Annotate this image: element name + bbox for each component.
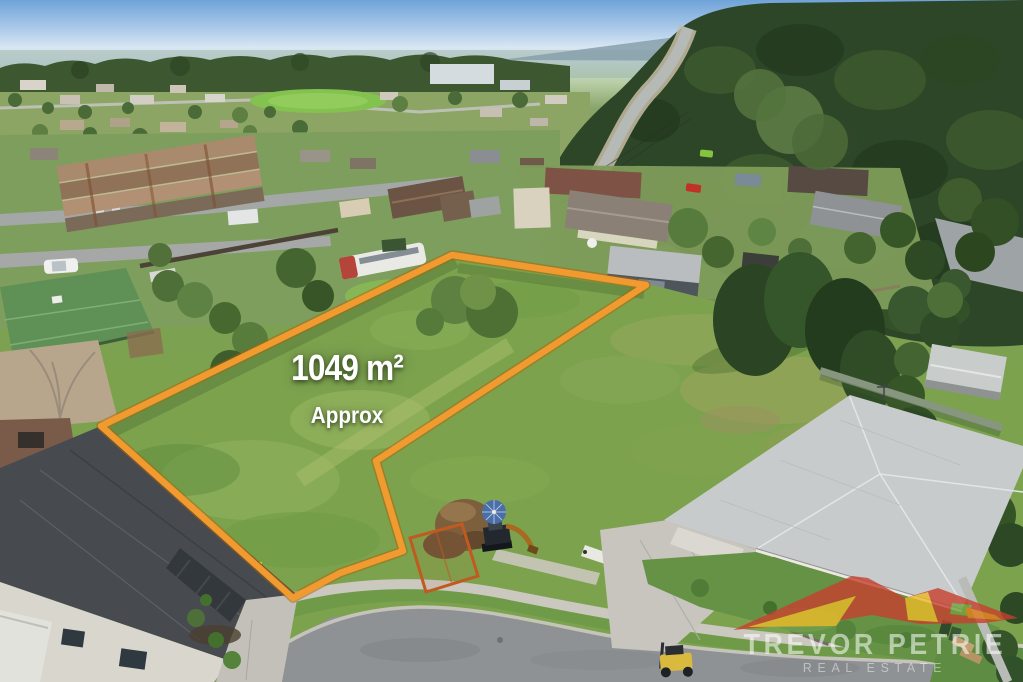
watermark-brand-name: TREVOR PETRIE bbox=[739, 631, 1011, 660]
bus-shelter bbox=[227, 209, 258, 226]
white-car bbox=[44, 258, 79, 274]
green-shed bbox=[382, 238, 407, 252]
green-car bbox=[700, 149, 714, 157]
scene bbox=[0, 0, 1023, 682]
watermark-tagline: REAL ESTATE bbox=[734, 661, 1015, 674]
umbrella bbox=[482, 500, 506, 524]
garden-shed-right bbox=[924, 344, 1006, 401]
skylight bbox=[52, 295, 63, 303]
outdoor-table bbox=[587, 238, 597, 248]
area-qualifier: Approx bbox=[257, 404, 437, 427]
area-label: 1049 m² bbox=[241, 350, 452, 386]
aerial-property-photo: 1049 m² Approx TREVOR PETRIE REAL ESTATE bbox=[0, 0, 1023, 682]
